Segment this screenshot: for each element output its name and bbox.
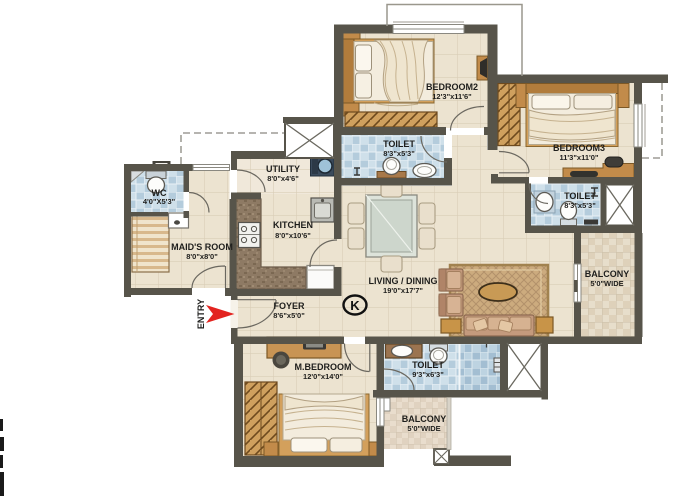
svg-text:4'0"X5'3": 4'0"X5'3" (143, 197, 176, 206)
svg-text:8'0"x4'6": 8'0"x4'6" (267, 174, 299, 183)
svg-text:5'0"WIDE: 5'0"WIDE (407, 424, 440, 433)
svg-text:19'0"x17'7": 19'0"x17'7" (383, 286, 423, 295)
svg-text:ENTRY: ENTRY (196, 299, 206, 329)
svg-text:BEDROOM2: BEDROOM2 (426, 82, 478, 92)
svg-text:MAID'S ROOM: MAID'S ROOM (171, 242, 233, 252)
svg-text:8'0"x8'0": 8'0"x8'0" (186, 252, 218, 261)
svg-text:11'3"x11'0": 11'3"x11'0" (559, 153, 598, 162)
svg-text:LIVING / DINING: LIVING / DINING (368, 276, 437, 286)
svg-text:TOILET: TOILET (383, 139, 415, 149)
svg-text:8'6"x5'0": 8'6"x5'0" (273, 311, 305, 320)
svg-text:8'3"x5'3": 8'3"x5'3" (564, 201, 596, 210)
svg-text:UTILITY: UTILITY (266, 164, 300, 174)
svg-text:BALCONY: BALCONY (585, 269, 630, 279)
svg-text:12'3"x11'6": 12'3"x11'6" (432, 92, 472, 101)
svg-text:KITCHEN: KITCHEN (273, 220, 313, 230)
svg-text:TOILET: TOILET (412, 360, 444, 370)
svg-text:9'3"x6'3": 9'3"x6'3" (412, 370, 444, 379)
svg-text:BEDROOM3: BEDROOM3 (553, 143, 605, 153)
svg-text:M.BEDROOM: M.BEDROOM (295, 362, 352, 372)
svg-text:BALCONY: BALCONY (402, 414, 447, 424)
svg-text:12'0"x14'0": 12'0"x14'0" (303, 372, 343, 381)
svg-text:TOILET: TOILET (564, 191, 596, 201)
svg-text:8'0"x10'6": 8'0"x10'6" (275, 231, 311, 240)
svg-text:FOYER: FOYER (273, 301, 305, 311)
svg-text:8'3"x5'3": 8'3"x5'3" (383, 149, 415, 158)
svg-text:K: K (350, 298, 360, 313)
svg-text:5'0"WIDE: 5'0"WIDE (590, 279, 623, 288)
